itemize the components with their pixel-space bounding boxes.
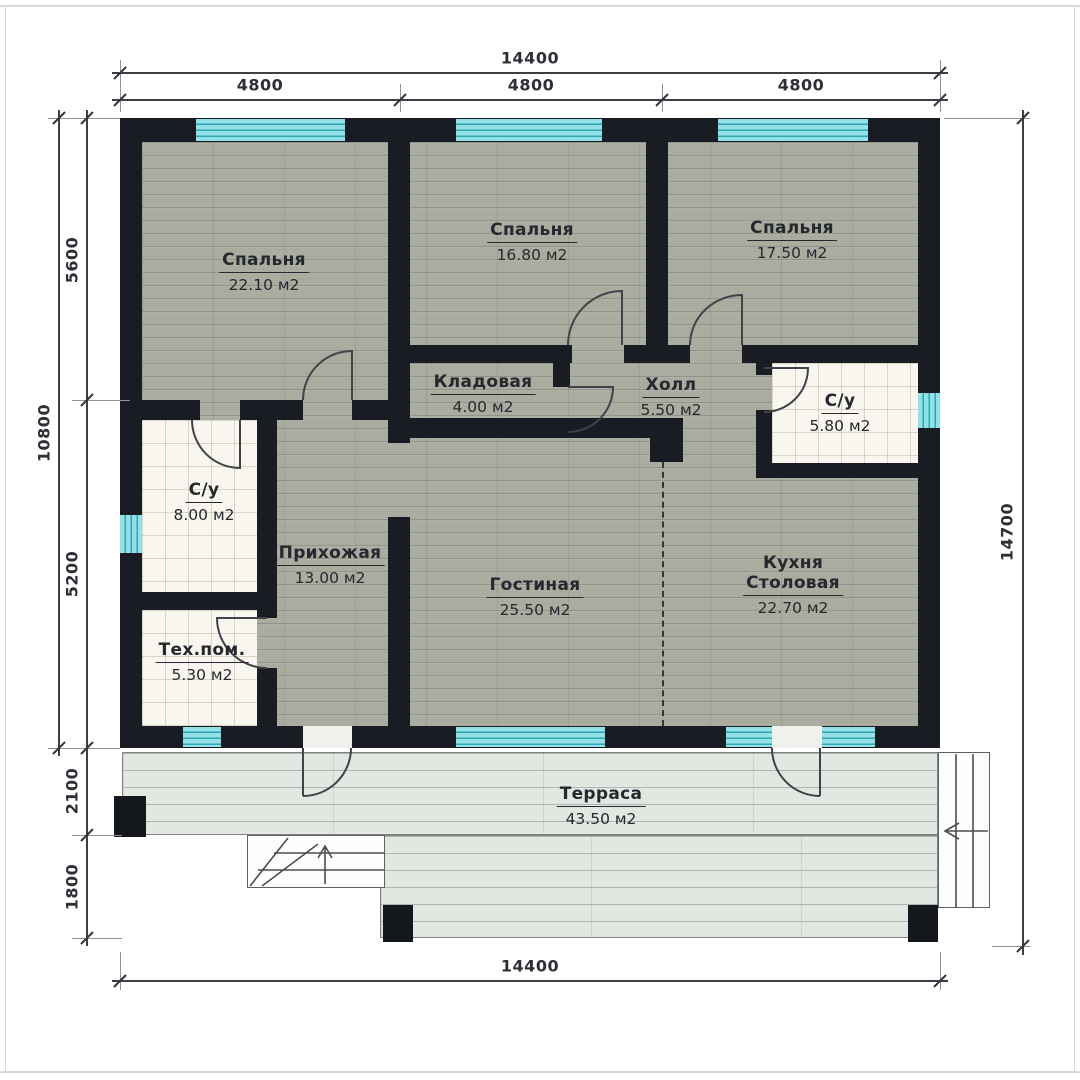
door-arc-bathroom-8 (189, 417, 243, 471)
wall-bedroom1-bottom (352, 400, 388, 420)
photo-edge-top (0, 5, 1080, 7)
room-label-terrace: Терраса 43.50 м2 (557, 784, 646, 828)
room-label-bedroom-1: Спальня 22.10 м2 (219, 250, 309, 294)
wall-bedroom1-bedroom2 (388, 142, 410, 443)
terrace-steps-left (247, 835, 385, 888)
wall-hall-corner (650, 418, 683, 462)
outer-wall-right (918, 118, 940, 748)
photo-edge-left (5, 5, 6, 1073)
dim-left-seg-top: 5600 (63, 237, 82, 284)
room-label-bathroom-8: С/у 8.00 м2 (174, 480, 235, 524)
door-arc-bedroom-2 (566, 289, 624, 347)
room-name: Прихожая (276, 543, 385, 566)
room-label-livingroom: Гостиная 25.50 м2 (487, 575, 584, 619)
door-arc-storage (565, 384, 616, 435)
door-arc-bathroom-58 (761, 365, 811, 415)
dim-terrace-lower: 1800 (63, 864, 82, 911)
room-area: 13.00 м2 (276, 566, 385, 587)
room-label-entry: Прихожая 13.00 м2 (276, 543, 385, 587)
room-label-bedroom-3: Спальня 17.50 м2 (747, 218, 837, 262)
room-name: Спальня (487, 220, 577, 243)
wall-bath8-right (257, 420, 277, 618)
window (918, 393, 940, 428)
room-area: 43.50 м2 (557, 807, 646, 828)
door-arc-entry-terrace (300, 745, 354, 799)
window (726, 727, 772, 747)
window (718, 119, 868, 141)
extension-line (72, 938, 122, 939)
door-arc-bedroom-1 (300, 348, 356, 404)
room-area: 8.00 м2 (174, 503, 235, 524)
wall-entry-living (388, 517, 410, 726)
room-name: Кладовая (431, 372, 536, 395)
dim-left-total: 10800 (35, 404, 54, 462)
dim-left-seg-bottom: 5200 (63, 551, 82, 598)
room-area: 5.30 м2 (156, 663, 249, 684)
steps-treads (939, 753, 991, 909)
room-area: 16.80 м2 (487, 243, 577, 264)
outer-wall-left (120, 118, 142, 748)
room-area: 25.50 м2 (487, 598, 584, 619)
wall-bedroom2-bedroom3 (646, 142, 668, 363)
extension-line (72, 400, 130, 401)
wall-bath8-techroom (142, 592, 257, 610)
window (120, 515, 142, 553)
dimension-line-left-segments (86, 110, 88, 946)
room-label-bedroom-2: Спальня 16.80 м2 (487, 220, 577, 264)
room-label-techroom: Тех.пом. 5.30 м2 (156, 640, 249, 684)
wall-bedroom3-bottom (742, 345, 918, 363)
terrace-post (383, 905, 413, 942)
steps-treads-and-arrow (248, 836, 386, 889)
dimension-line-top-segments (112, 99, 948, 101)
door-arc-bedroom-3 (687, 292, 745, 348)
window (183, 727, 221, 747)
room-area: 17.50 м2 (747, 241, 837, 262)
door-arc-kitchen-terrace (769, 745, 823, 799)
room-name: Спальня (219, 250, 309, 273)
window (822, 727, 875, 747)
terrace-deck-lower (380, 835, 938, 938)
living-kitchen-divider-dashed (662, 462, 664, 726)
room-name: Холл (643, 375, 700, 398)
extension-line (120, 952, 121, 990)
room-name: Тех.пом. (156, 640, 249, 663)
room-name: С/у (186, 480, 223, 503)
room-label-hall: Холл 5.50 м2 (641, 375, 702, 419)
room-area: 5.80 м2 (810, 414, 871, 435)
room-label-storage: Кладовая 4.00 м2 (431, 372, 536, 416)
dim-terrace-depth: 2100 (63, 768, 82, 815)
extension-line (992, 946, 1030, 947)
wall-bedroom1-bottom (240, 400, 303, 420)
extension-line (120, 60, 121, 112)
dim-bottom-total: 14400 (501, 957, 559, 976)
dim-top-seg-1: 4800 (237, 76, 284, 95)
wall-techroom-right (257, 668, 277, 726)
window (456, 119, 602, 141)
room-area: 22.10 м2 (219, 273, 309, 294)
room-name: С/у (822, 391, 859, 414)
dimension-line-bottom-total (112, 980, 948, 982)
dim-top-seg-3: 4800 (778, 76, 825, 95)
room-name: Спальня (747, 218, 837, 241)
room-area: 4.00 м2 (431, 395, 536, 416)
dimension-line-right-total (1022, 110, 1024, 955)
room-area: 5.50 м2 (641, 398, 702, 419)
terrace-post (908, 905, 938, 942)
terrace-post (114, 796, 146, 837)
floor-plan-canvas: Спальня 22.10 м2 Спальня 16.80 м2 Спальн… (0, 0, 1080, 1080)
room-name: Столовая (743, 573, 843, 596)
wall-bath58-bottom (756, 463, 918, 478)
window (456, 727, 605, 747)
photo-edge-right (1074, 5, 1075, 1073)
wall-bedroom2-bottom (624, 345, 646, 363)
room-label-bathroom-58: С/у 5.80 м2 (810, 391, 871, 435)
dimension-line-left-total (58, 110, 60, 756)
dim-top-seg-2: 4800 (508, 76, 555, 95)
room-name: Кухня (743, 553, 843, 573)
window (196, 119, 345, 141)
dim-top-total: 14400 (501, 49, 559, 68)
photo-edge-bottom (0, 1071, 1080, 1073)
extension-line (940, 60, 941, 112)
dim-right-total: 14700 (998, 503, 1017, 561)
room-name: Терраса (557, 784, 646, 807)
extension-line (944, 118, 1030, 119)
dimension-line-top-total (112, 72, 948, 74)
room-area: 22.70 м2 (743, 596, 843, 617)
terrace-steps-right (938, 752, 990, 908)
room-name: Гостиная (487, 575, 584, 598)
extension-line (940, 952, 941, 990)
extension-line (72, 835, 122, 836)
room-label-kitchen-dining: Кухня Столовая 22.70 м2 (743, 553, 843, 617)
wall-bedroom2-bottom (410, 345, 572, 363)
